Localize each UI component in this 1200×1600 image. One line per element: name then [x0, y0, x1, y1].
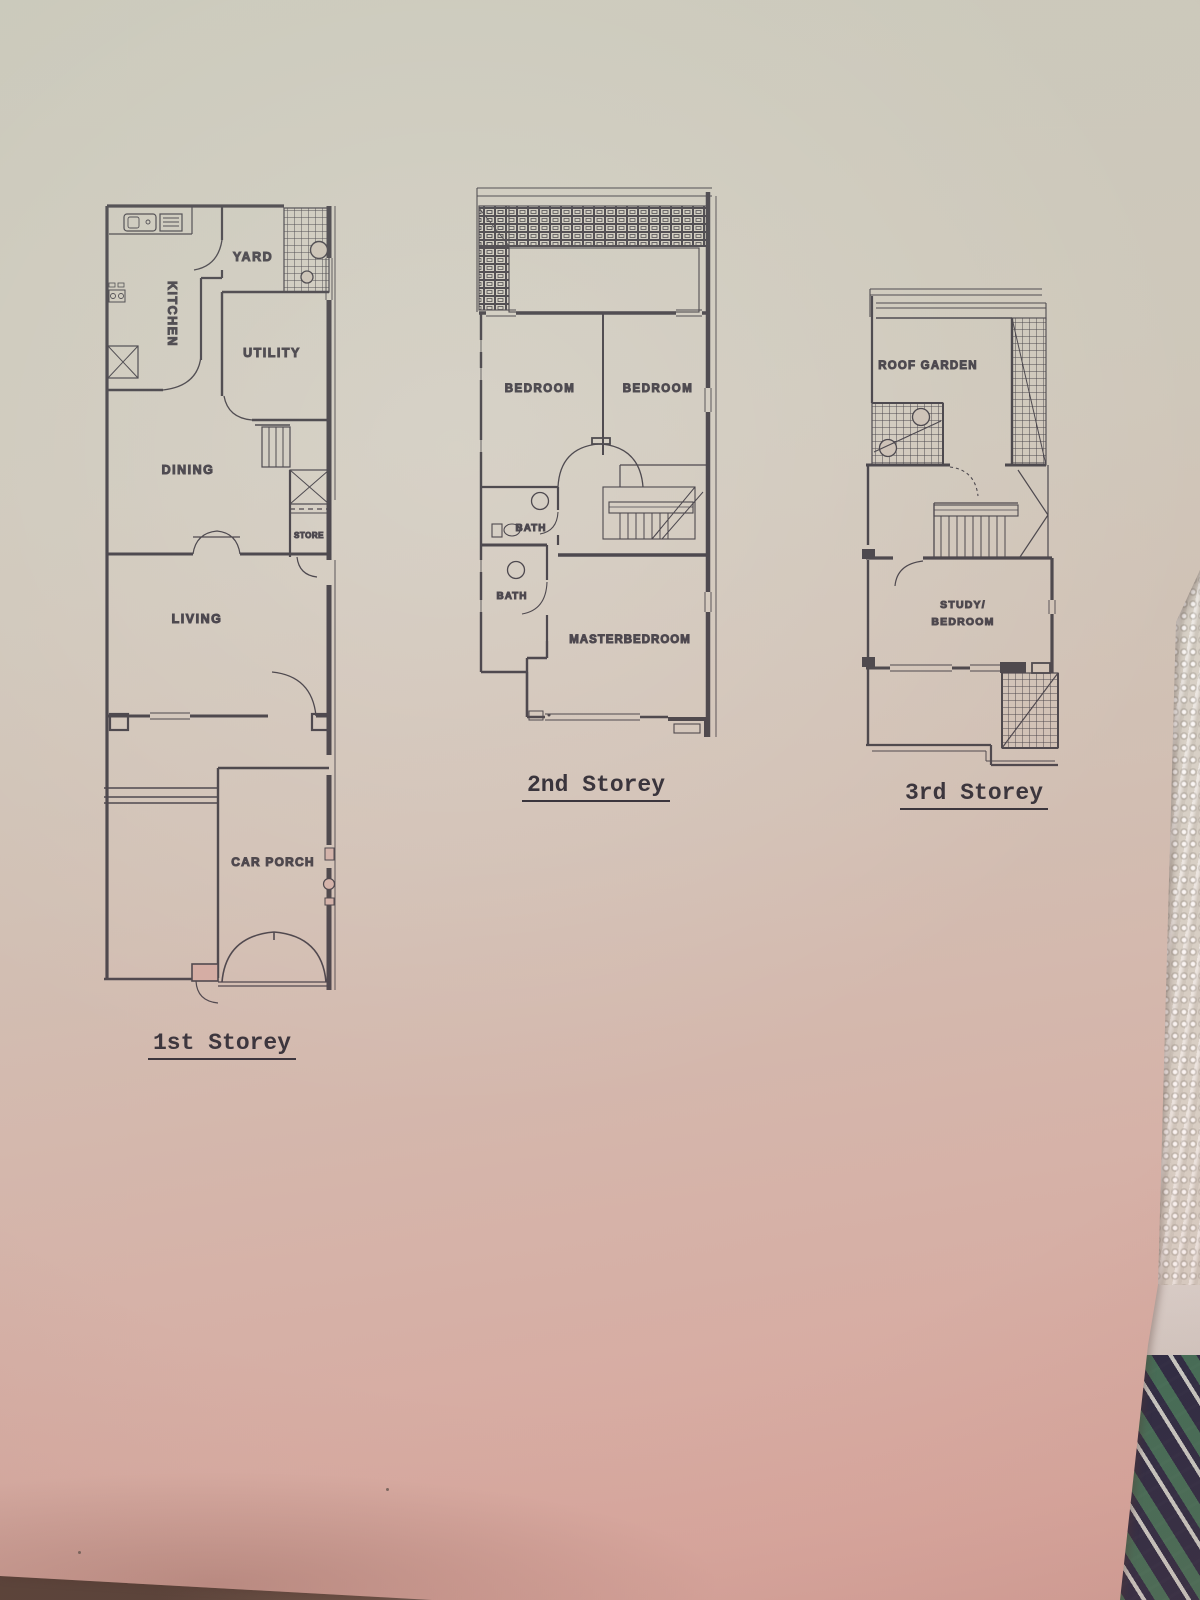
storey-label-3rd: 3rd Storey [900, 780, 1048, 810]
planter-strip [479, 206, 709, 246]
kitchen-counter [109, 206, 192, 234]
master-door [529, 711, 543, 720]
plan-3rd-storey: ROOF GARDEN STUDY/ BEDROOM [862, 289, 1058, 765]
balcony-recess [509, 248, 699, 312]
room-label-kitchen: KITCHEN [165, 281, 179, 347]
car-porch-gates [218, 932, 329, 986]
side-door-arc [196, 981, 218, 1003]
kitchen-door-arc [194, 240, 222, 270]
roof-bath-area [872, 403, 943, 465]
storey-label-1st: 1st Storey [148, 1030, 296, 1060]
floor-trap-icon [108, 346, 138, 378]
dining-double-door [193, 531, 240, 554]
kitchen-wall-fixtures [109, 283, 125, 302]
yard-wc-fixture [311, 242, 328, 259]
stairs-3rd [934, 465, 1048, 557]
bedroom-doors [558, 438, 643, 487]
floor-plan-photo: KITCHEN YARD UTILITY DINING STORE LIVING… [0, 0, 1200, 1600]
room-label-yard: YARD [233, 250, 273, 264]
stairs-2nd [603, 465, 707, 539]
room-label-utility: UTILITY [243, 346, 301, 360]
basin-icon-2 [508, 562, 525, 579]
utility-door-arc [224, 396, 252, 420]
plan-1st-storey: KITCHEN YARD UTILITY DINING STORE LIVING… [104, 206, 335, 1003]
kitchen-dining-door-arc [163, 356, 201, 390]
plan-2nd-storey: BEDROOM BEDROOM BATH BATH MASTERBEDROOM [477, 188, 716, 737]
room-label-bedroom-left: BEDROOM [505, 383, 576, 395]
yard-basin-fixture [301, 271, 313, 283]
landing-door-arc [950, 467, 978, 496]
room-label-bedroom-right: BEDROOM [623, 383, 694, 395]
gate-post-detail [324, 879, 335, 890]
sink-icon [124, 214, 156, 231]
room-label-bath-upper: BATH [515, 523, 546, 534]
dust-speck [386, 1488, 389, 1491]
room-label-living: LIVING [172, 612, 223, 626]
storey-label-2nd: 2nd Storey [522, 772, 670, 802]
rear-balcony [1002, 673, 1058, 748]
room-label-study-line1: STUDY/ [940, 599, 986, 611]
store-door-arc [297, 557, 317, 577]
basin-icon [532, 493, 549, 510]
study-door-arc [895, 561, 923, 586]
room-label-dining: DINING [162, 463, 215, 477]
room-label-store: STORE [294, 531, 324, 540]
room-label-bath-lower: BATH [496, 591, 527, 602]
room-label-masterbedroom: MASTERBEDROOM [569, 634, 691, 646]
room-label-roof-garden: ROOF GARDEN [878, 360, 977, 372]
dust-speck [78, 1551, 81, 1554]
entrance-door-arc [272, 672, 316, 716]
room-label-car-porch: CAR PORCH [231, 855, 314, 869]
side-door [192, 964, 218, 981]
fence-lines [104, 788, 218, 803]
stove-icon [160, 214, 182, 231]
room-label-study-line2: BEDROOM [931, 616, 994, 628]
